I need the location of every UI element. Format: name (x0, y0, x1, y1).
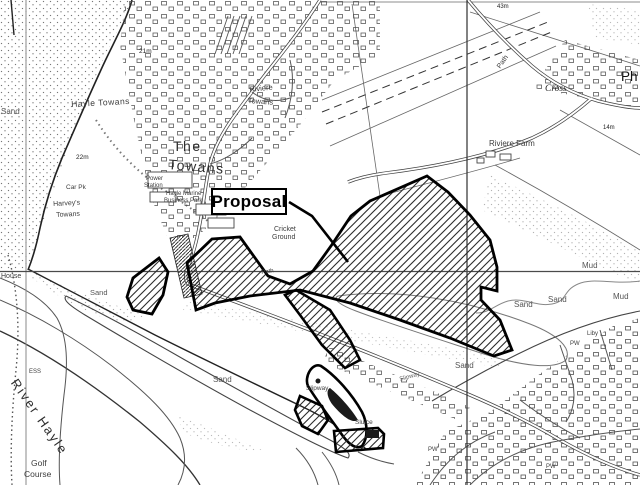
proposal-label-text: Proposal (211, 192, 286, 212)
os-map-extract: Proposal Sand Hayle Towans 22m 21m The T… (0, 0, 640, 485)
proposal-west-parcel (127, 258, 168, 314)
map-canvas (0, 0, 640, 485)
proposal-label: Proposal (211, 188, 287, 215)
